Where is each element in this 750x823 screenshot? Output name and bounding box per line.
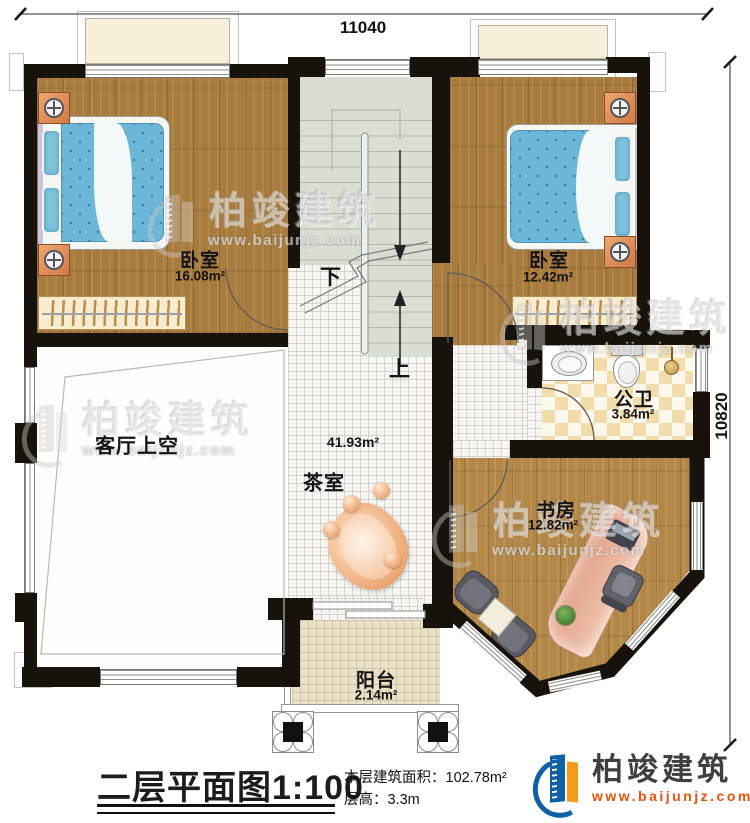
brand-name: 柏竣建筑 [592,752,750,788]
pillow [42,186,61,234]
title-underline-thin [97,812,335,814]
brand-block: 柏竣建筑 www.baijunjz.com [533,752,750,814]
plan-title: 二层平面图1:100 [97,760,364,809]
stairs-lower-treads [368,265,432,357]
floor-area-value: 102.78m² [446,770,507,786]
wall [637,60,650,330]
pouf [384,551,401,568]
window [100,669,237,685]
bathroom-door-gap-floor [527,388,542,440]
floor-area-line: 本层建筑面积：102.78m² [344,767,507,789]
table-lamp-icon [44,250,64,270]
column-core [283,722,303,742]
plan-title-name: 二层平面图 [97,769,272,807]
table-lamp-icon [44,98,64,118]
wall [432,337,453,610]
nightstand [38,92,70,124]
watermark-name: 柏竣建筑 [560,300,732,340]
plan-info: 本层建筑面积：102.78m² 层高：3.3m [344,767,507,812]
window [325,59,410,75]
watermark-logo-icon [22,402,76,464]
room-label-tea-room: 茶室 [303,467,345,496]
wall [510,440,700,458]
nightstand [604,92,636,124]
dimension-top-label: 11040 [340,18,386,38]
bed-sheet-fold [576,130,610,243]
brand-logo-icon [533,752,587,814]
room-area-study: 12.82m² [528,518,578,533]
window [24,463,35,593]
room-area-bedroom-right: 12.42m² [523,270,573,285]
room-area-bathroom: 3.84m² [612,407,655,422]
shower-head-icon [664,360,679,375]
balcony-door-gap-floor [313,598,423,620]
room-area-bedroom-left: 16.08m² [175,269,225,284]
window-sill-outline-right [648,52,666,92]
pillow [613,190,632,238]
living-void-floor [37,347,288,667]
stair-up-label: 上 [389,353,411,383]
wardrobe [38,296,186,330]
wall [24,64,37,347]
floor-area-label: 本层建筑面积： [344,770,446,786]
watermark-logo-icon [500,300,554,362]
watermark-name: 柏竣建筑 [208,192,380,232]
floor-height-label: 层高： [344,792,388,808]
window [478,59,608,75]
room-area-balcony: 2.14m² [355,688,398,703]
table-lamp-icon [610,242,630,262]
pouf [373,482,390,499]
title-underline-thick [97,804,335,807]
window [85,64,230,78]
window-sill-outline-left [9,53,24,91]
table-lamp-icon [610,98,630,118]
double-bed-right [506,124,640,250]
wall [432,57,450,263]
plant-icon [556,606,575,625]
column-core [428,722,448,742]
study-door-gap-floor [453,440,510,458]
dimension-right-label: 10820 [712,392,732,439]
room-label-bedroom-right: 卧室 [529,246,569,273]
nightstand [38,244,70,276]
nightstand [604,236,636,268]
wall [24,622,37,687]
floor-height-line: 层高：3.3m [344,789,507,811]
bay-window-right [478,25,608,59]
bed-sheet-fold [94,123,132,242]
pillow [613,135,632,183]
room-label-living-void: 客厅上空 [95,430,179,459]
watermark-url: www.baijunjz.com [208,232,380,249]
pillow [42,129,61,177]
wall-pilaster [15,593,37,622]
floor-plan-canvas: 11040 10820 [0,0,750,823]
watermark-url: www.baijunjz.com [560,340,732,357]
wall [423,604,453,628]
wall [24,333,288,347]
floor-height-value: 3.3m [388,792,420,808]
balcony-column [272,711,314,753]
bay-window-left [85,18,230,64]
balcony-column [417,711,459,753]
wall [296,57,325,77]
watermark-url: www.baijunjz.com [492,542,664,559]
pouf [323,521,340,538]
room-area-tea-room: 41.93m² [327,434,379,450]
watermark: 柏竣建筑 www.baijunjz.com [500,300,732,362]
watermark-logo-icon [432,502,486,564]
wall [24,347,37,367]
stair-down-label: 下 [320,261,342,291]
pouf [343,495,360,512]
brand-url: www.baijunjz.com [592,788,750,804]
wall [237,667,300,687]
